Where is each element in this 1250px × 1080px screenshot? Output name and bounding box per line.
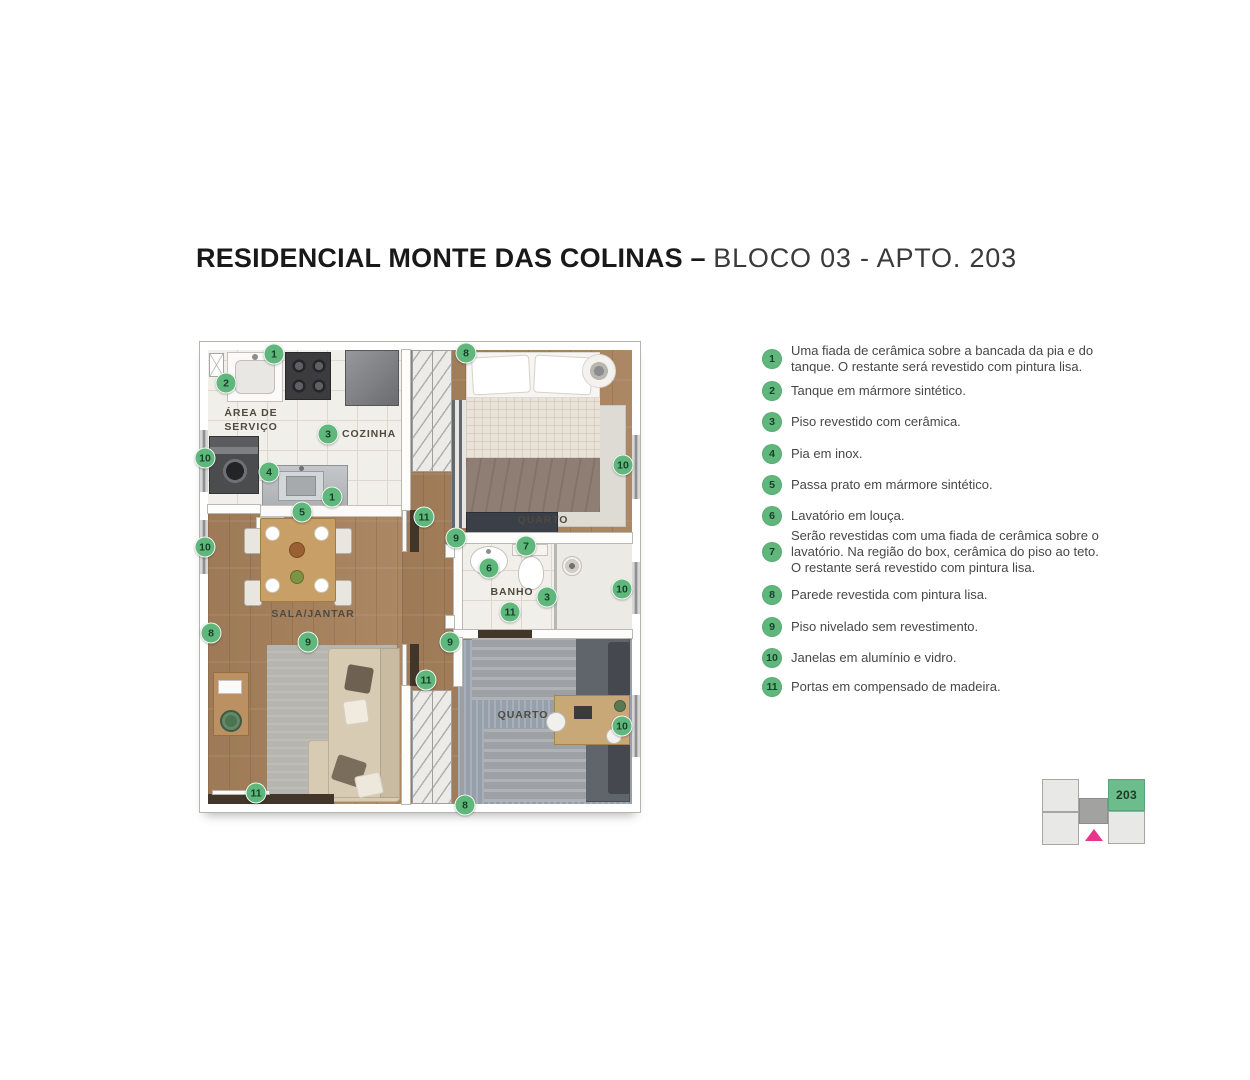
wall <box>208 505 260 513</box>
sofa-back <box>380 648 400 798</box>
place-setting <box>265 526 280 541</box>
bath-faucet <box>486 549 491 554</box>
legend-text-6: Lavatório em louça. <box>791 508 904 524</box>
desk-plant <box>614 700 626 712</box>
bread-basket <box>289 542 305 558</box>
legend-item-10: 10Janelas em alumínio e vidro. <box>762 648 956 668</box>
legend-badge-10: 10 <box>762 648 782 668</box>
legend-badge-8: 8 <box>762 585 782 605</box>
plan-badge-10: 10 <box>612 716 633 737</box>
fridge <box>345 350 399 406</box>
plan-badge-10: 10 <box>195 448 216 469</box>
legend-badge-6: 6 <box>762 506 782 526</box>
legend-item-4: 4Pia em inox. <box>762 444 863 464</box>
legend-text-1: Uma fiada de cerâmica sobre a bancada da… <box>791 343 1093 375</box>
plan-badge-9: 9 <box>446 528 467 549</box>
washing-machine <box>209 436 259 494</box>
door-leaf <box>402 644 407 686</box>
plan-badge-3: 3 <box>537 587 558 608</box>
dining-chair <box>334 528 352 554</box>
key-plan-unit <box>1042 779 1079 812</box>
legend-item-6: 6Lavatório em louça. <box>762 506 904 526</box>
title-project-name: RESIDENCIAL MONTE DAS COLINAS – <box>196 243 706 273</box>
wall <box>455 533 632 543</box>
legend-badge-11: 11 <box>762 677 782 697</box>
plan-badge-3: 3 <box>318 424 339 445</box>
door-opening <box>478 630 532 638</box>
legend-text-3: Piso revestido com cerâmica. <box>791 414 961 430</box>
key-plan-unit-number: 203 <box>1116 788 1137 802</box>
bed1-blanket <box>466 458 600 512</box>
legend-badge-5: 5 <box>762 475 782 495</box>
tank-faucet <box>252 354 258 360</box>
legend-item-11: 11Portas em compensado de madeira. <box>762 677 1001 697</box>
wall <box>402 686 410 804</box>
legend-item-2: 2Tanque em mármore sintético. <box>762 381 966 401</box>
plan-badge-11: 11 <box>416 670 437 691</box>
room-label-living: SALA/JANTAR <box>263 607 363 621</box>
legend-badge-1: 1 <box>762 349 782 369</box>
legend-text-5: Passa prato em mármore sintético. <box>791 477 993 493</box>
tank-basin <box>235 360 275 394</box>
legend-badge-2: 2 <box>762 381 782 401</box>
sink-basin <box>286 476 316 496</box>
plan-badge-2: 2 <box>216 373 237 394</box>
legend-badge-9: 9 <box>762 617 782 637</box>
place-setting <box>265 578 280 593</box>
plan-badge-4: 4 <box>259 462 280 483</box>
bed2-blanket <box>472 638 576 700</box>
tv-tray <box>218 680 242 694</box>
key-plan-unit-highlighted: 203 <box>1108 779 1145 811</box>
room-label-service: ÁREA DE SERVIÇO <box>216 406 286 434</box>
plan-badge-11: 11 <box>500 602 521 623</box>
plan-badge-8: 8 <box>456 343 477 364</box>
floor-plan: ÁREA DE SERVIÇO COZINHA SALA/JANTAR QUAR… <box>200 342 640 812</box>
shower-glass <box>554 543 557 630</box>
plant <box>220 710 242 732</box>
plan-badge-7: 7 <box>516 536 537 557</box>
bed2-pillow <box>608 642 630 696</box>
key-plan-north-arrow <box>1085 829 1103 841</box>
plan-badge-11: 11 <box>414 507 435 528</box>
pillow <box>471 355 531 396</box>
plan-badge-10: 10 <box>612 579 633 600</box>
sofa-pillow <box>344 664 374 694</box>
plan-badge-6: 6 <box>479 558 500 579</box>
stove <box>285 352 331 400</box>
legend-text-2: Tanque em mármore sintético. <box>791 383 966 399</box>
legend-badge-4: 4 <box>762 444 782 464</box>
room-label-bedroom1: QUARTO <box>508 513 578 527</box>
door-leaf <box>402 510 407 552</box>
wardrobe-bedroom2 <box>412 690 452 804</box>
wall <box>454 543 462 630</box>
place-setting <box>314 526 329 541</box>
window <box>632 695 640 757</box>
plan-badge-8: 8 <box>201 623 222 644</box>
place-setting <box>314 578 329 593</box>
wall-stub <box>446 616 454 628</box>
wardrobe-bedroom1 <box>412 350 452 472</box>
side-plant <box>582 354 616 388</box>
legend-item-9: 9Piso nivelado sem revestimento. <box>762 617 978 637</box>
legend-text-8: Parede revestida com pintura lisa. <box>791 587 988 603</box>
plan-badge-11: 11 <box>246 783 267 804</box>
plan-badge-9: 9 <box>440 632 461 653</box>
laptop <box>574 706 592 719</box>
dining-chair <box>334 580 352 606</box>
plan-badge-10: 10 <box>195 537 216 558</box>
plan-badge-1: 1 <box>322 487 343 508</box>
key-plan-unit <box>1042 812 1079 845</box>
legend-badge-7: 7 <box>762 542 782 562</box>
sofa-pillow <box>342 698 369 725</box>
legend-badge-3: 3 <box>762 412 782 432</box>
legend-item-5: 5Passa prato em mármore sintético. <box>762 475 993 495</box>
sink-faucet <box>299 466 304 471</box>
key-plan-core <box>1079 798 1108 824</box>
legend-item-8: 8Parede revestida com pintura lisa. <box>762 585 988 605</box>
key-plan-unit <box>1108 811 1145 844</box>
room-label-bath: BANHO <box>484 585 540 599</box>
room-label-bedroom2: QUARTO <box>488 708 558 722</box>
legend-text-7: Serão revestidas com uma fiada de cerâmi… <box>791 528 1099 576</box>
legend-text-10: Janelas em alumínio e vidro. <box>791 650 956 666</box>
legend-item-3: 3Piso revestido com cerâmica. <box>762 412 961 432</box>
entry-door-opening <box>208 794 334 804</box>
plan-badge-9: 9 <box>298 632 319 653</box>
window <box>632 562 640 614</box>
plan-badge-8: 8 <box>455 795 476 816</box>
legend-text-9: Piso nivelado sem revestimento. <box>791 619 978 635</box>
bed1-sheet <box>466 398 600 458</box>
legend-text-11: Portas em compensado de madeira. <box>791 679 1001 695</box>
room-label-kitchen: COZINHA <box>342 427 412 441</box>
plan-badge-5: 5 <box>292 502 313 523</box>
key-plan: 203 <box>1040 775 1148 849</box>
shower-head <box>562 556 582 576</box>
legend-item-1: 1Uma fiada de cerâmica sobre a bancada d… <box>762 343 1093 375</box>
legend: 1Uma fiada de cerâmica sobre a bancada d… <box>762 0 1107 1080</box>
legend-item-7: 7Serão revestidas com uma fiada de cerâm… <box>762 528 1099 576</box>
page: RESIDENCIAL MONTE DAS COLINAS – BLOCO 03… <box>0 0 1250 1080</box>
legend-text-4: Pia em inox. <box>791 446 863 462</box>
plan-badge-1: 1 <box>264 344 285 365</box>
salad-bowl <box>290 570 304 584</box>
plan-badge-10: 10 <box>613 455 634 476</box>
